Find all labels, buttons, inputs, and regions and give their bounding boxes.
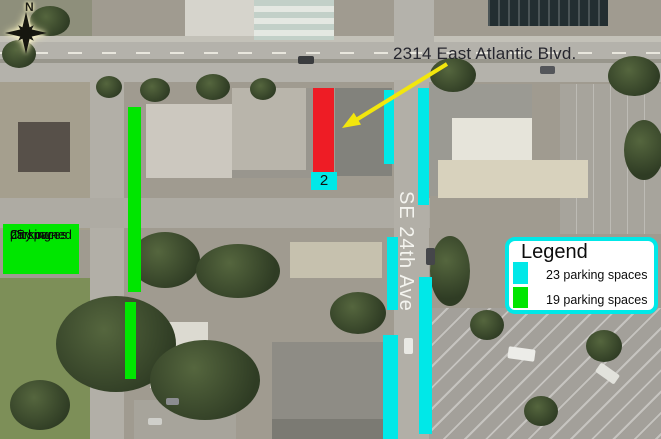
- tree: [10, 380, 70, 430]
- car: [166, 398, 179, 405]
- building: [18, 122, 70, 172]
- parking-zone-cyan-2: [418, 88, 429, 205]
- car: [540, 66, 555, 74]
- annotated-aerial-map: 2 2314 East Atlantic Blvd. SE 24th Ave C…: [0, 0, 661, 439]
- legend-title: Legend: [521, 241, 588, 264]
- car: [298, 56, 314, 64]
- parking-zone-cyan-1: [384, 90, 394, 164]
- tree: [624, 120, 661, 180]
- tree: [250, 78, 276, 100]
- building: [185, 0, 257, 36]
- tree: [196, 244, 280, 298]
- address-label: 2314 East Atlantic Blvd.: [393, 44, 573, 64]
- parking-zone-cyan-5: [383, 335, 398, 439]
- compass-star-icon: [4, 11, 48, 55]
- building: [146, 104, 234, 178]
- aerial-photo-background: [0, 0, 661, 439]
- city-parking-callout: City owned parking- 25 spaces: [3, 224, 79, 274]
- building: [254, 0, 334, 40]
- compass-rose: N: [4, 0, 56, 62]
- road: [394, 0, 434, 42]
- building: [232, 88, 314, 178]
- building: [438, 160, 588, 198]
- street-name-label: SE 24th Ave: [394, 191, 417, 317]
- legend-label: 23 parking spaces: [546, 268, 647, 282]
- parking-zone-green-2: [125, 302, 136, 379]
- legend-label: 19 parking spaces: [546, 293, 647, 307]
- site-number-marker: 2: [311, 172, 337, 190]
- tree: [430, 236, 470, 306]
- parking-zone-green-1: [128, 107, 141, 292]
- tree: [524, 396, 558, 426]
- tree: [608, 56, 660, 96]
- tree: [586, 330, 622, 362]
- highlighted-building-zone: [313, 88, 334, 173]
- legend-swatch-cyan: [513, 262, 528, 284]
- tree: [470, 310, 504, 340]
- city-parking-line: 25 spaces: [10, 227, 67, 243]
- legend-swatch-green: [513, 287, 528, 308]
- tree: [150, 340, 260, 420]
- tree: [196, 74, 230, 100]
- tree: [96, 76, 122, 98]
- parking-zone-cyan-4: [419, 277, 432, 434]
- legend: Legend 23 parking spaces 19 parking spac…: [505, 237, 658, 314]
- building: [488, 0, 608, 26]
- building: [290, 242, 382, 278]
- tree: [140, 78, 170, 102]
- tree: [330, 292, 386, 334]
- car: [426, 248, 435, 265]
- car: [404, 338, 413, 354]
- building: [272, 342, 384, 439]
- car: [148, 418, 162, 425]
- building-roof: [452, 118, 532, 166]
